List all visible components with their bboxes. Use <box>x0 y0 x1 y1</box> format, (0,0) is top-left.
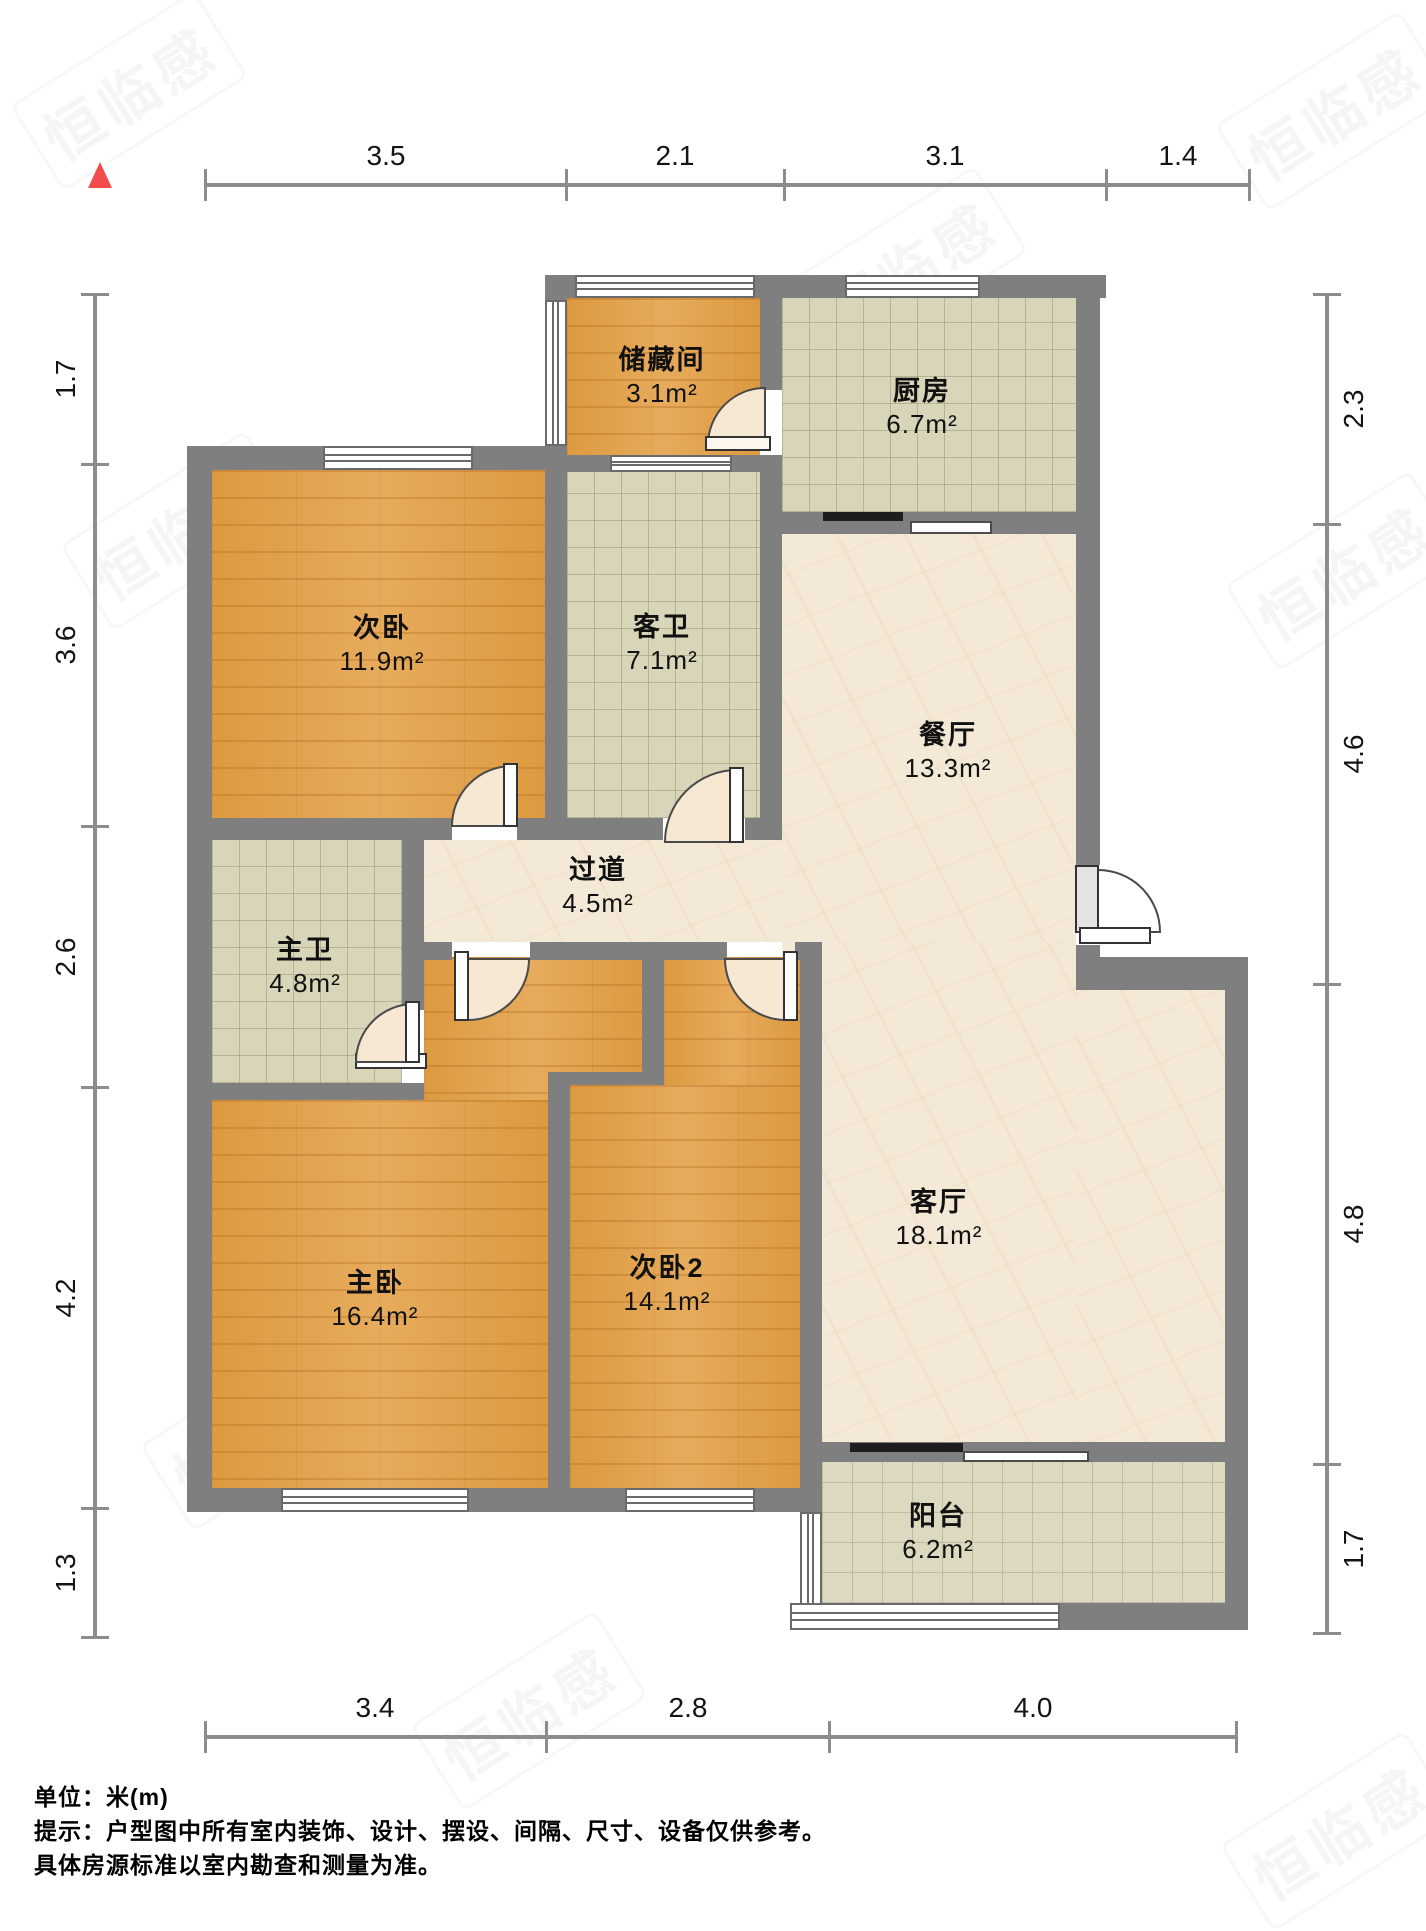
dim-top-3: 3.1 <box>926 140 965 172</box>
dim-left-4: 4.2 <box>50 1279 82 1318</box>
dim-right-1: 2.3 <box>1338 390 1370 429</box>
room-label-guest-bath: 客卫 7.1m² <box>626 611 697 677</box>
door-arc-guest-bath <box>665 770 737 842</box>
room-label-kitchen: 厨房 6.7m² <box>886 375 957 441</box>
dim-left-5: 1.3 <box>50 1554 82 1593</box>
footer-hint1: 提示：户型图中所有室内装饰、设计、摆设、间隔、尺寸、设备仅供参考。 <box>34 1814 826 1848</box>
room-label-balcony: 阳台 6.2m² <box>902 1500 973 1566</box>
door-leaf-storage <box>706 437 770 450</box>
dim-bottom-3: 4.0 <box>1014 1692 1053 1724</box>
dim-top-2: 2.1 <box>656 140 695 172</box>
door-leaf-entry <box>1076 866 1098 932</box>
footer-unit: 单位：米(m) <box>34 1780 826 1814</box>
door-leaf-bedroom2 <box>504 764 517 826</box>
room-label-hallway: 过道 4.5m² <box>562 854 633 920</box>
dim-left-2: 3.6 <box>50 626 82 665</box>
door-sill-entry <box>1080 928 1150 943</box>
door-arc-bedroom3 <box>725 959 786 1020</box>
door-leaf-bedroom3 <box>784 952 797 1020</box>
footer-hint2: 具体房源标准以室内勘查和测量为准。 <box>34 1848 826 1882</box>
door-leaf-guest-bath <box>730 768 743 842</box>
room-label-storage: 储藏间 3.1m² <box>619 344 706 410</box>
footer-notes: 单位：米(m) 提示：户型图中所有室内装饰、设计、摆设、间隔、尺寸、设备仅供参考… <box>34 1780 826 1882</box>
dim-top-4: 1.4 <box>1159 140 1198 172</box>
dim-left-3: 2.6 <box>50 938 82 977</box>
room-label-bedroom2: 次卧 11.9m² <box>340 612 425 678</box>
dim-bottom-2: 2.8 <box>669 1692 708 1724</box>
door-leaf-master-bath <box>406 1002 419 1062</box>
dim-right-2: 4.6 <box>1338 735 1370 774</box>
door-symbols <box>0 0 1426 1931</box>
dim-right-4: 1.7 <box>1338 1530 1370 1569</box>
floor-plan: 恒临感 恒临感 恒临感 恒临感 恒临感 恒临感 恒临感 恒临感 恒临感 <box>0 0 1426 1931</box>
room-label-master: 主卧 16.4m² <box>332 1267 419 1333</box>
room-label-dining: 餐厅 13.3m² <box>905 719 992 785</box>
room-label-master-bath: 主卫 4.8m² <box>269 934 340 1000</box>
dim-left-1: 1.7 <box>50 360 82 399</box>
door-arc-master <box>468 959 529 1020</box>
dim-right-3: 4.8 <box>1338 1205 1370 1244</box>
room-label-bedroom3: 次卧2 14.1m² <box>624 1252 711 1318</box>
dim-bottom-1: 3.4 <box>356 1692 395 1724</box>
door-leaf-master <box>455 952 468 1020</box>
dim-top-1: 3.5 <box>367 140 406 172</box>
room-label-living: 客厅 18.1m² <box>896 1186 983 1252</box>
door-arc-entry <box>1098 870 1160 932</box>
